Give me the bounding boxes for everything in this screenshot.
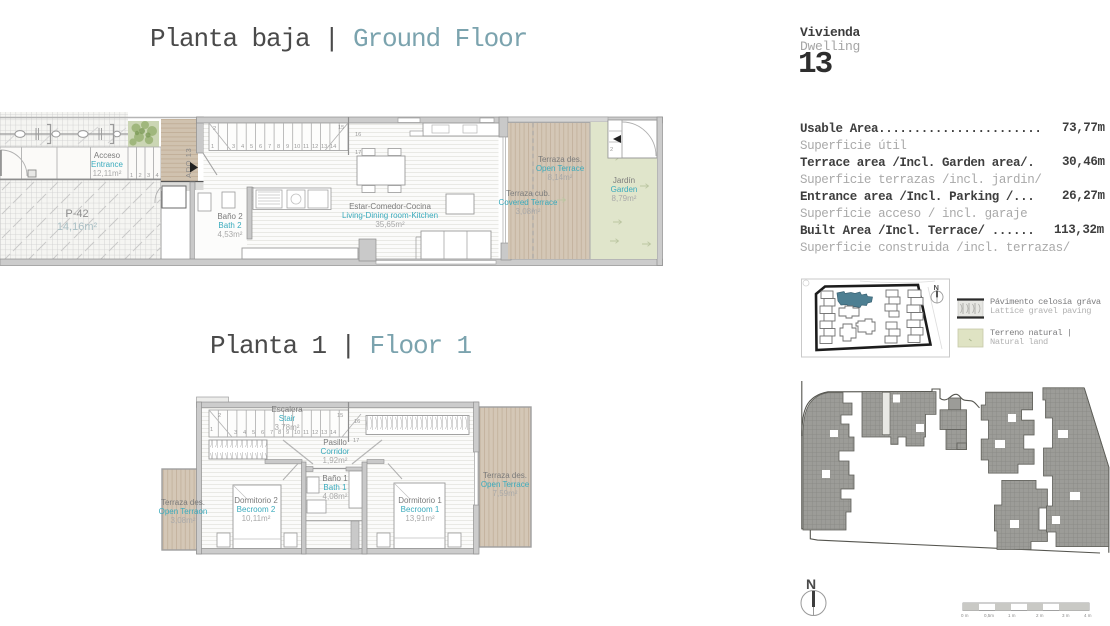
svg-text:0 m: 0 m bbox=[961, 613, 969, 618]
svg-text:4 m: 4 m bbox=[1084, 613, 1092, 618]
svg-text:3 m: 3 m bbox=[1062, 613, 1070, 618]
svg-text:0,5m: 0,5m bbox=[984, 613, 994, 618]
svg-text:2 m: 2 m bbox=[1036, 613, 1044, 618]
svg-text:N: N bbox=[806, 576, 816, 592]
svg-text:1 m: 1 m bbox=[1008, 613, 1016, 618]
